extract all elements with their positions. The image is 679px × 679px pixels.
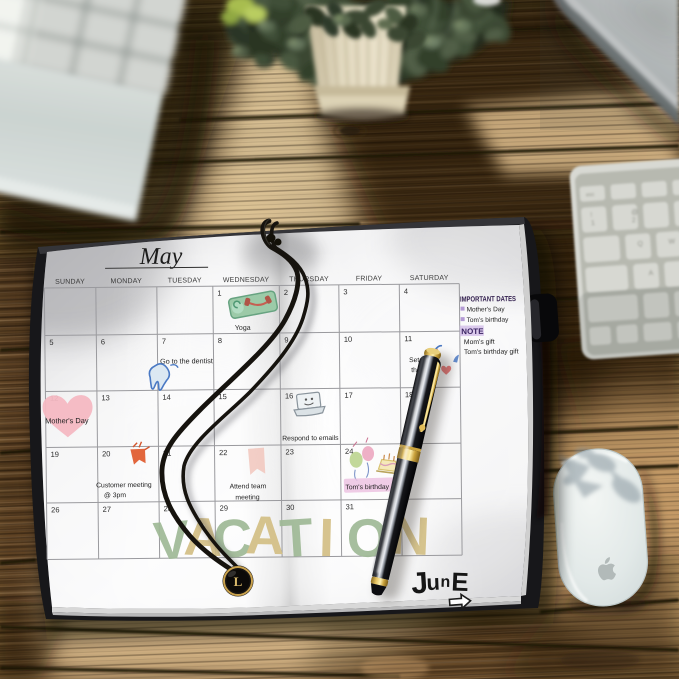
svg-text:n: n [440, 574, 450, 591]
svg-text:19: 19 [50, 450, 58, 459]
svg-text:Mother's Day: Mother's Day [45, 416, 89, 425]
svg-text:1: 1 [217, 289, 221, 298]
svg-text:23: 23 [285, 447, 293, 456]
svg-text:14: 14 [162, 393, 170, 402]
svg-text:WEDNESDAY: WEDNESDAY [223, 277, 270, 284]
svg-text:8: 8 [218, 336, 222, 345]
svg-text:Tom's birthday gift: Tom's birthday gift [464, 349, 519, 357]
svg-text:27: 27 [103, 505, 111, 514]
svg-text:6: 6 [101, 337, 105, 346]
svg-text:26: 26 [51, 505, 59, 514]
svg-text:16: 16 [285, 391, 293, 400]
svg-text:May: May [139, 244, 183, 270]
svg-text:Go to the dentist: Go to the dentist [160, 356, 213, 366]
svg-text:2: 2 [284, 288, 288, 297]
svg-text:Customer meeting: Customer meeting [96, 482, 152, 490]
svg-text:u: u [426, 570, 441, 596]
svg-text:17: 17 [344, 391, 352, 400]
svg-text:3: 3 [343, 287, 347, 296]
svg-text:SUNDAY: SUNDAY [55, 279, 85, 286]
svg-text:5: 5 [49, 338, 53, 347]
svg-text:L: L [234, 574, 243, 589]
svg-text:MONDAY: MONDAY [111, 278, 143, 285]
svg-text:meeting: meeting [235, 494, 259, 501]
svg-text:Mother's Day: Mother's Day [467, 306, 506, 313]
svg-text:Respond to emails: Respond to emails [282, 435, 339, 443]
svg-text:10: 10 [344, 335, 352, 344]
svg-text:FRIDAY: FRIDAY [356, 275, 383, 282]
svg-text:T: T [278, 507, 315, 569]
svg-text:13: 13 [101, 393, 109, 402]
svg-text:Tom's birthday: Tom's birthday [345, 484, 389, 491]
svg-text:22: 22 [219, 448, 227, 457]
svg-text:20: 20 [102, 449, 110, 458]
svg-text:IMPORTANT DATES: IMPORTANT DATES [460, 294, 516, 304]
svg-text:E: E [451, 566, 470, 597]
svg-text:9: 9 [284, 335, 288, 344]
svg-text:@ 3pm: @ 3pm [104, 492, 126, 499]
svg-text:Mom's gift: Mom's gift [464, 339, 495, 346]
svg-text:NOTE: NOTE [461, 327, 484, 336]
svg-text:11: 11 [404, 334, 412, 343]
svg-text:4: 4 [404, 287, 408, 296]
svg-text:7: 7 [162, 337, 166, 346]
svg-text:I: I [318, 508, 334, 568]
svg-text:TUESDAY: TUESDAY [168, 277, 202, 284]
svg-text:Attend team: Attend team [230, 483, 267, 490]
svg-text:Tom's birthday: Tom's birthday [467, 317, 510, 324]
svg-text:SATURDAY: SATURDAY [410, 275, 449, 282]
svg-text:Yoga: Yoga [235, 325, 251, 332]
